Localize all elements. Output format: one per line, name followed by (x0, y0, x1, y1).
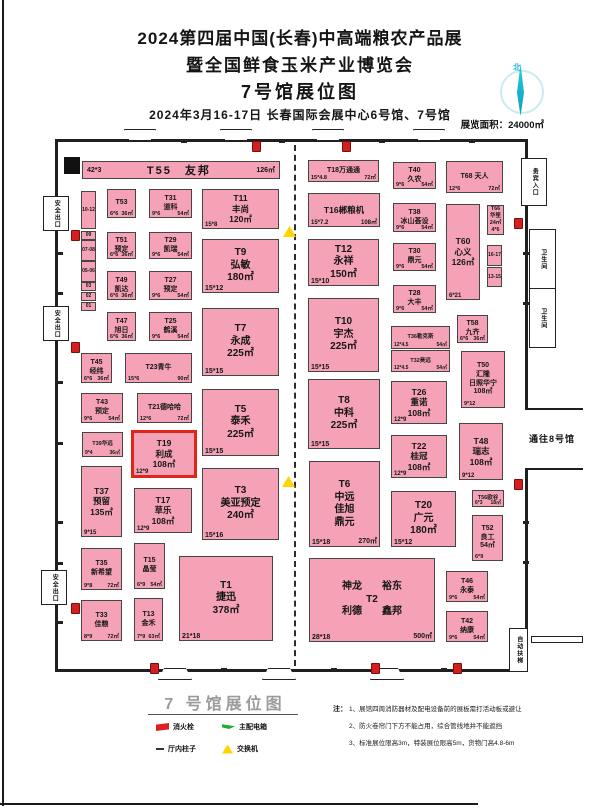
booth-T15: T15晶莹6*954㎡ (134, 543, 165, 589)
booth-T56: T56欧谷6*318㎡ (472, 490, 504, 507)
booth-T8: T8中科225㎡15*15 (308, 379, 380, 449)
booth-C03: 03 (81, 282, 96, 291)
booth-T19: T19利成108㎡12*9 (131, 430, 197, 478)
booth-C10-12: 10-12 (81, 191, 96, 229)
booth-T42: T42纳康9*654㎡ (446, 611, 488, 642)
booth-T13: T13金禾7*963㎡ (134, 598, 163, 641)
pillar-tick (57, 621, 63, 624)
fire-hydrant-icon (514, 218, 523, 229)
pillar-tick (57, 292, 63, 295)
booth-T49: T49凯达6*636㎡ (107, 271, 136, 300)
safety-exit-label: 安全出口 (43, 196, 69, 231)
booth-T33: T33佳粮8*972㎡ (81, 600, 122, 641)
fire-hydrant-icon (71, 230, 80, 241)
escalator-bar (531, 636, 583, 643)
booth-T21: T21德哈哈12*672㎡ (137, 393, 192, 423)
legend-underline (148, 714, 298, 715)
pillar-tick (379, 140, 385, 143)
to-hall8-label: 通往8号馆 (524, 433, 580, 447)
hydrant-flag-icon (156, 723, 169, 731)
booth-T46: T46永泰9*654㎡ (446, 571, 488, 602)
booth-C02: 02 (81, 292, 96, 301)
booth-T40: T40久农9*654㎡ (393, 162, 436, 189)
booth-T25: T25鹤溪9*654㎡ (149, 312, 192, 341)
pillar-tick (57, 252, 63, 255)
booth-T28: T28大丰9*654㎡ (393, 285, 436, 313)
restroom-label: 卫生间 (529, 288, 556, 348)
pillar-tick (441, 668, 447, 671)
safety-exit-label: 安全出口 (41, 570, 67, 605)
safety-exit-label: 安全出口 (43, 306, 69, 341)
legend-item: 厅内柱子 (156, 744, 222, 754)
fire-hydrant-icon (453, 663, 462, 674)
booth-T2: 神龙 裕东T2利德 鑫邦28*18500㎡ (309, 558, 435, 642)
fire-hydrant-icon (342, 141, 351, 152)
booth-T60: T60心义126㎡6*21 (446, 204, 480, 300)
booth-T17: T17草乐108㎡12*9 (134, 488, 192, 533)
booth-T31: T31道科9*654㎡ (149, 189, 192, 218)
booth-C01: 01 (81, 302, 96, 311)
fire-hydrant-icon (71, 603, 80, 614)
booth-T6: T6中远佳旭鼎元15*18270㎡ (309, 461, 380, 547)
pillar-tick (279, 140, 285, 143)
note-lines: 1、展馆四周消防器材及配电设备前的展板需打活动板或避让2、防火卷帘门下方不能占用… (349, 701, 522, 752)
booth-T43: T43预定9*654㎡ (81, 393, 123, 423)
booth-T5: T5泰禾225㎡15*15 (202, 389, 279, 456)
fire-hydrant-icon (71, 342, 80, 353)
booth-T35: T35新希望9*872㎡ (81, 548, 122, 590)
booth-T58: T58九齐6*636㎡ (457, 315, 488, 343)
booth-T3: T3美亚预定240㎡15*16 (202, 468, 279, 540)
legend-item: 主配电箱 (222, 722, 288, 732)
fire-hydrant-icon (150, 663, 159, 674)
wall-top (55, 139, 528, 142)
fire-hydrant-icon (371, 663, 380, 674)
booth-T45: T45经纬6*636㎡ (81, 353, 112, 383)
escalator-label: 自动扶梯 (509, 628, 528, 672)
notes-label: 注： (333, 701, 347, 752)
note-line: 3、标准展位限高3m，特装展位限高5m，货物门高4.8-6m (349, 735, 522, 752)
wall-pier (64, 157, 80, 174)
fire-hydrant-icon (514, 479, 523, 490)
booth-T9: T9弘敏180㎡15*12 (202, 239, 279, 293)
booth-T10: T10宇杰225㎡15*15 (308, 298, 379, 372)
booth-T32: T32昊远12*4.554㎡ (391, 350, 450, 372)
note-line: 1、展馆四周消防器材及配电设备前的展板需打活动板或避让 (349, 701, 522, 718)
booth-T11: T11丰尚120㎡15*8 (202, 189, 279, 229)
switch-triangle-icon (222, 745, 233, 754)
booth-T12: T12永祥150㎡15*10 (308, 239, 379, 286)
pillar-tick (469, 140, 475, 143)
booth-T36: T36勒克斯12*4.554㎡ (391, 326, 450, 349)
booth-T48: T48瑞志108㎡9*12 (459, 423, 503, 480)
pillar-tick (523, 521, 529, 524)
booth-C05-06: 05-06 (81, 261, 96, 282)
note-line: 2、防火卷帘门下方不能占用，综合管线地井不能遮挡 (349, 718, 522, 735)
booth-T18: T18万通通15*4.872㎡ (308, 160, 379, 182)
legend-items: 消火栓主配电箱厅内柱子交换机 (156, 722, 296, 766)
booth-T22: T22桂冠108㎡12*9 (391, 435, 447, 478)
vip-entrance-label: 贵宾入口 (521, 158, 547, 206)
booth-T68: T68 天人12*672㎡ (446, 161, 503, 193)
pillar-dash-icon (156, 748, 164, 750)
pillar-tick (57, 521, 63, 524)
booth-T53: T536*636㎡ (107, 189, 136, 218)
restroom-label: 卫生间 (529, 229, 556, 289)
booth-T52: T52良工54㎡6*9 (472, 515, 503, 561)
booth-T16: T16郴粮机15*7.2108㎡ (308, 193, 380, 227)
booth-C07-08: 07-08 (81, 240, 96, 261)
booth-T47: T47旭日6*636㎡ (107, 312, 136, 341)
pillar-tick (331, 668, 337, 671)
booth-T50: T50汇隆日照华宁108㎡9*12 (461, 351, 505, 408)
booth-T7: T7永成225㎡15*15 (202, 308, 279, 376)
booth-T39: T39华远9*436㎡ (82, 432, 123, 457)
booth-C09: 09 (81, 231, 96, 240)
power-flag-icon (222, 723, 235, 731)
legend-item: 消火栓 (156, 722, 222, 732)
fire-hydrant-icon (252, 141, 261, 152)
pillar-tick (57, 381, 63, 384)
legend-item: 交换机 (222, 744, 288, 754)
booth-T23: T23青牛15*690㎡ (125, 353, 192, 383)
booth-T27: T27预定9*654㎡ (149, 271, 192, 300)
pillar-tick (221, 668, 227, 671)
legend-title: 7 号馆展位图 (150, 690, 300, 714)
booth-T26: T26重诺108㎡12*9 (391, 381, 447, 424)
corridor-wall-upper (528, 408, 583, 410)
booth-T38: T38冰山荟设9*654㎡ (393, 203, 436, 232)
booth-T30: T30鼎元9*654㎡ (393, 243, 436, 271)
pillar-tick (57, 562, 63, 565)
booth-T66: T66华笙24㎡4*6 (487, 205, 504, 235)
booth-T20: T20广元180㎡15*12 (391, 491, 456, 547)
hall-floor-plan: 42*3T55 友邦126㎡T536*636㎡T51预定6*636㎡T49凯达6… (0, 0, 600, 810)
notes-block: 注： 1、展馆四周消防器材及配电设备前的展板需打活动板或避让2、防火卷帘门下方不… (333, 701, 583, 752)
booth-T37: T37预留135㎡9*15 (81, 466, 122, 537)
booth-T55: 42*3T55 友邦126㎡ (82, 161, 280, 179)
expansion-joint-dashed-line (294, 145, 296, 666)
booth-T29: T29凯瑞9*654㎡ (149, 232, 192, 259)
pillar-tick (57, 442, 63, 445)
corridor-wall-lower (528, 468, 583, 470)
booth-B16-17: 16-17 (487, 245, 502, 266)
pillar-tick (523, 561, 529, 564)
booth-T51: T51预定6*636㎡ (107, 232, 136, 259)
booth-B13-15: 13-15 (487, 267, 502, 287)
booth-T1: T1捷迅378㎡21*18 (179, 556, 273, 641)
pillar-tick (181, 140, 187, 143)
floor-plan-page: 2024第四届中国(长春)中高端粮农产品展 暨全国鲜食玉米产业博览会 7号馆展位… (0, 0, 600, 810)
